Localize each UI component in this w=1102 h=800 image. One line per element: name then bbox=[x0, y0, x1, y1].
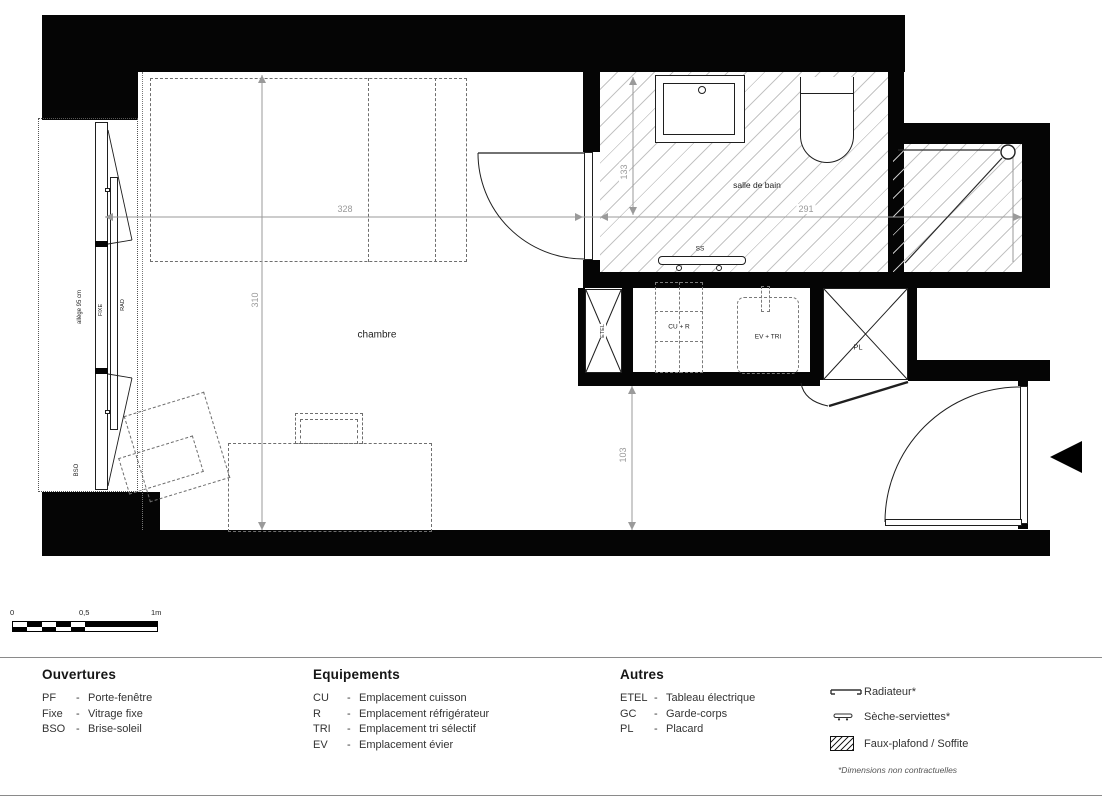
legend-item: PL-Placard bbox=[620, 722, 755, 738]
room-label-chambre: chambre bbox=[358, 330, 397, 341]
dim-arrow bbox=[575, 213, 583, 221]
dim-arrow bbox=[628, 386, 636, 394]
placard-door-leaf bbox=[829, 382, 908, 406]
legend-symbol-radiator: Radiateur* bbox=[830, 686, 968, 698]
label-ss: SS bbox=[696, 246, 705, 253]
plan-linework bbox=[0, 0, 1102, 800]
legend-equipements: Equipements CU-Emplacement cuisson R-Emp… bbox=[313, 667, 489, 753]
shower-head bbox=[1001, 145, 1015, 159]
window-sash-top-swing bbox=[108, 130, 132, 244]
scale-tick-half: 0,5 bbox=[79, 608, 89, 617]
bathroom-door-arc bbox=[478, 153, 584, 259]
dim-310: 310 bbox=[250, 290, 260, 309]
legend-item: ETEL-Tableau électrique bbox=[620, 691, 755, 707]
legend-item: CU-Emplacement cuisson bbox=[313, 691, 489, 707]
label-rad: RAD bbox=[120, 299, 126, 311]
label-allege: allège 95 cm bbox=[77, 290, 83, 324]
placard-door-arc bbox=[801, 383, 828, 406]
legend-autres-title: Autres bbox=[620, 667, 755, 682]
scale-bar-bottom-row bbox=[13, 627, 157, 632]
placard-x-mark bbox=[824, 289, 907, 379]
label-fixe: FIXE bbox=[98, 304, 104, 316]
legend-item: PF-Porte-fenêtre bbox=[42, 691, 152, 707]
entry-door-arc bbox=[885, 387, 1020, 522]
floor-plan-page: chambre salle de bain SS PL CU + R EV + … bbox=[0, 0, 1102, 800]
legend-equipements-title: Equipements bbox=[313, 667, 489, 682]
label-ev-tri: EV + TRI bbox=[754, 334, 782, 341]
dim-103: 103 bbox=[618, 445, 628, 464]
dim-328: 328 bbox=[335, 204, 354, 214]
scale-bar bbox=[12, 621, 158, 632]
dim-291: 291 bbox=[796, 204, 815, 214]
dim-arrow bbox=[258, 522, 266, 530]
entrance-arrow-icon bbox=[1050, 441, 1082, 473]
legend-symbol-towel-rail: Sèche-serviettes* bbox=[830, 711, 968, 723]
legend-bottom-divider bbox=[0, 795, 1102, 796]
dim-arrow bbox=[629, 207, 637, 215]
label-cu-r: CU + R bbox=[667, 324, 691, 331]
dim-arrow bbox=[258, 75, 266, 83]
room-label-sdb: salle de bain bbox=[733, 180, 781, 190]
legend-item: TRI-Emplacement tri sélectif bbox=[313, 722, 489, 738]
label-etel: ETEL bbox=[600, 324, 606, 338]
scale-tick-0: 0 bbox=[10, 608, 14, 617]
legend-item: EV-Emplacement évier bbox=[313, 738, 489, 754]
dim-arrow bbox=[1013, 213, 1022, 221]
legend-autres: Autres ETEL-Tableau électrique GC-Garde-… bbox=[620, 667, 755, 738]
scale-tick-1m: 1m bbox=[151, 608, 161, 617]
soffit-hatch-icon bbox=[830, 736, 864, 751]
legend-item: BSO-Brise-soleil bbox=[42, 722, 152, 738]
dim-arrow bbox=[105, 213, 113, 221]
dim-arrow bbox=[600, 213, 608, 221]
legend-ouvertures-title: Ouvertures bbox=[42, 667, 152, 682]
legend-item: Fixe-Vitrage fixe bbox=[42, 707, 152, 723]
shower-diagonal bbox=[905, 158, 1002, 263]
dim-arrow bbox=[628, 522, 636, 530]
dim-133: 133 bbox=[619, 162, 629, 181]
label-pl: PL bbox=[853, 343, 862, 352]
radiator-icon bbox=[830, 687, 864, 697]
legend-top-divider bbox=[0, 657, 1102, 658]
legend-footnote: *Dimensions non contractuelles bbox=[838, 765, 968, 775]
legend-ouvertures: Ouvertures PF-Porte-fenêtre Fixe-Vitrage… bbox=[42, 667, 152, 738]
towel-rail-icon bbox=[830, 713, 864, 721]
legend-item: R-Emplacement réfrigérateur bbox=[313, 707, 489, 723]
window-sash-bottom-swing bbox=[108, 374, 132, 486]
legend-symbols: Radiateur* Sèche-serviettes* Faux-plafon… bbox=[830, 686, 968, 775]
legend-symbol-soffit: Faux-plafond / Soffite bbox=[830, 736, 968, 751]
legend-item: GC-Garde-corps bbox=[620, 707, 755, 723]
dim-arrow bbox=[629, 77, 637, 85]
label-bso: BSO bbox=[74, 464, 80, 477]
